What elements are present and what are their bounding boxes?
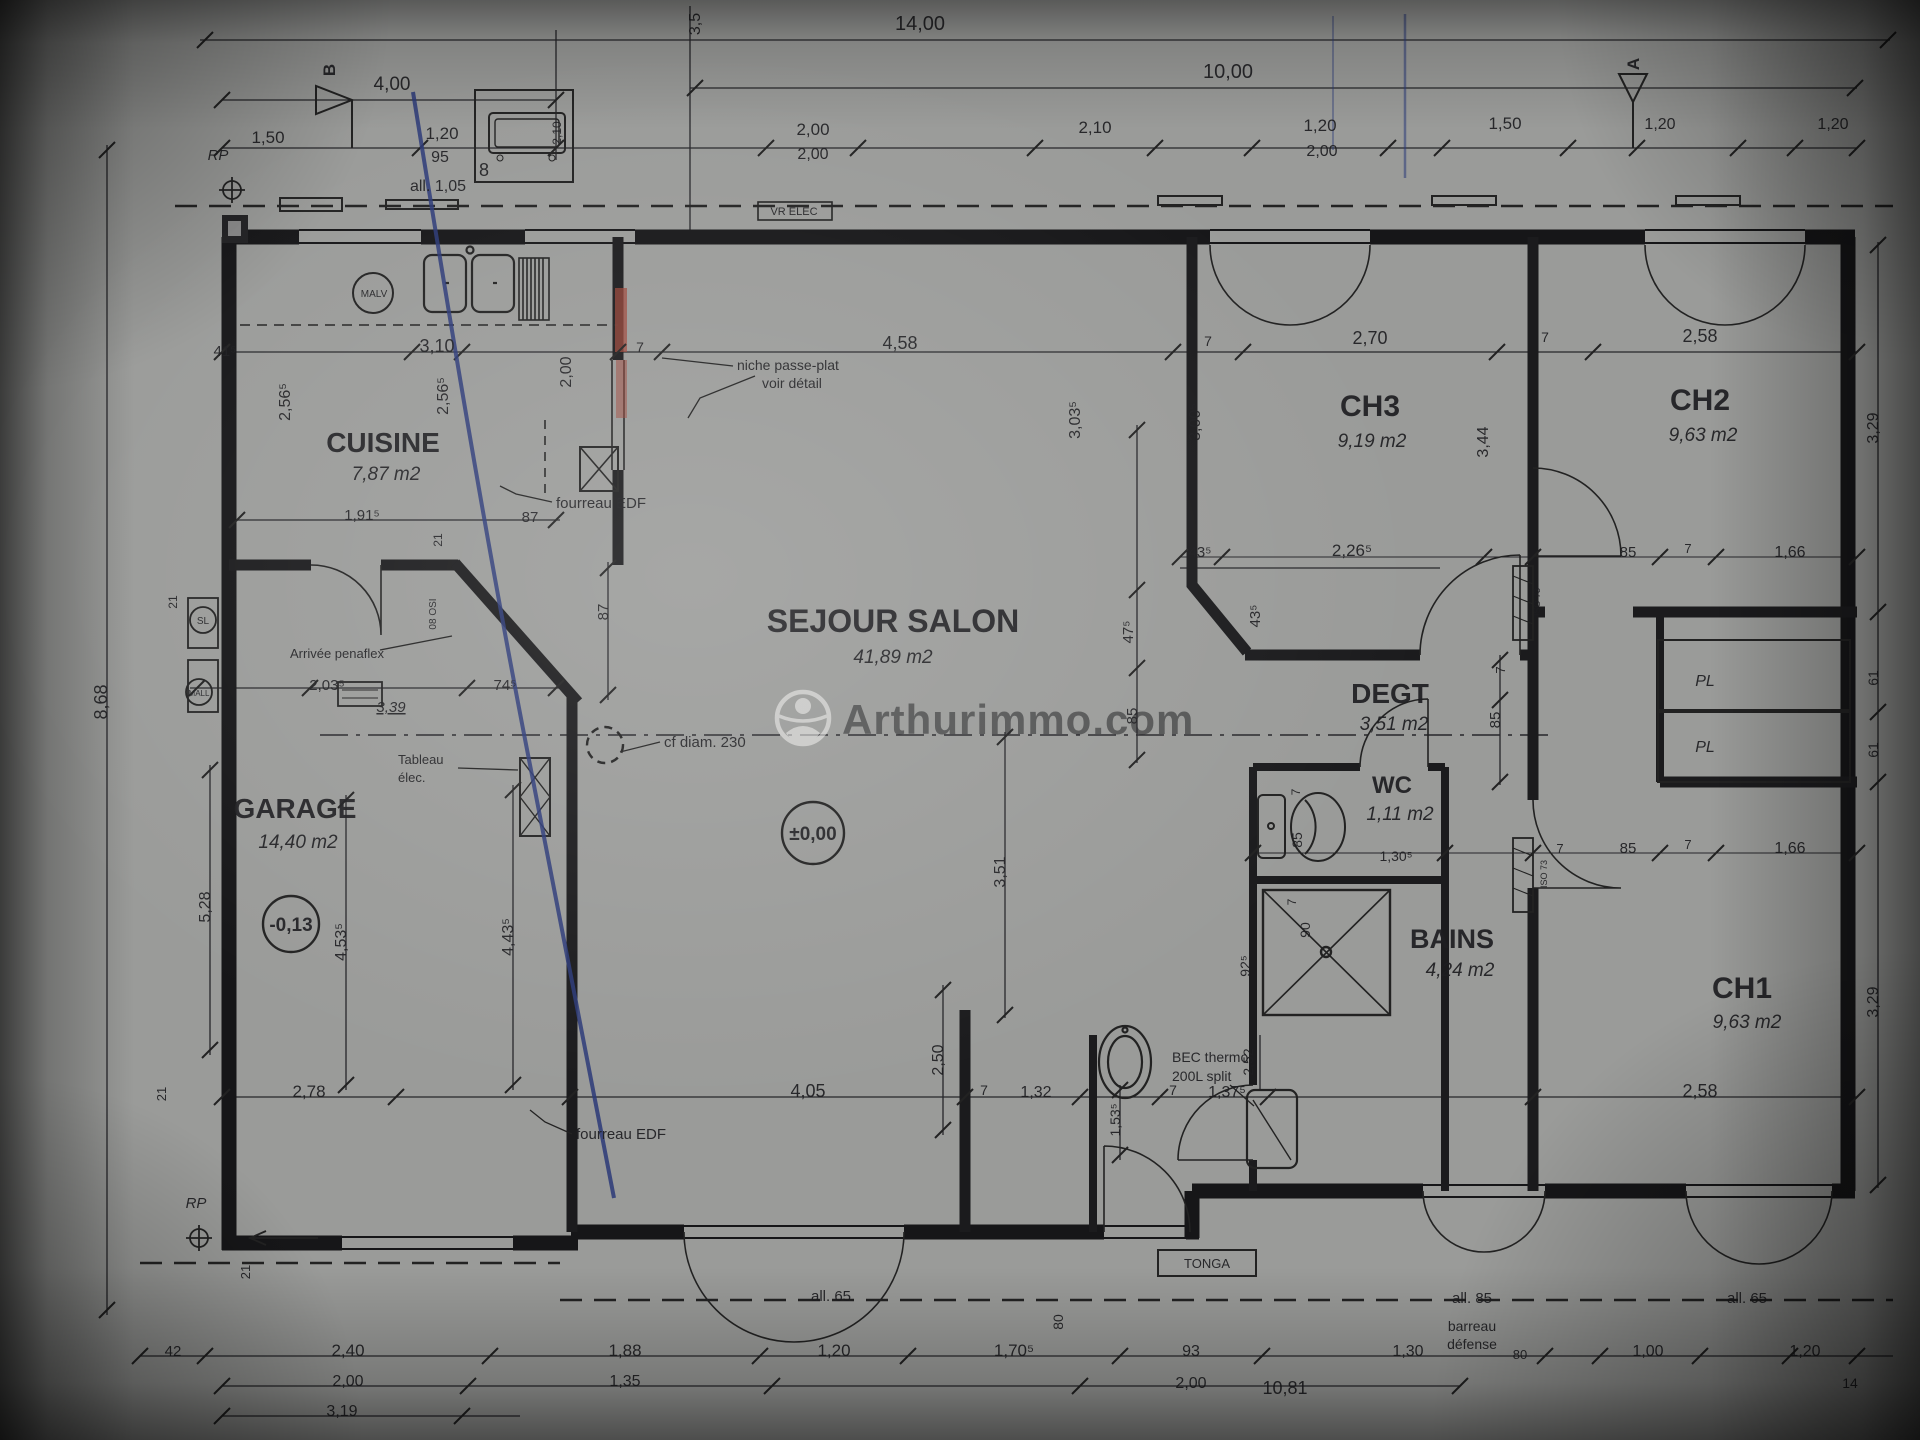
dim-label: 21 xyxy=(238,1265,253,1279)
room-area: 9,63 m2 xyxy=(1669,425,1738,446)
dim-label: 3,51 xyxy=(992,856,1009,887)
dim-label: 7 xyxy=(636,339,644,355)
dim-label: 4,05 xyxy=(790,1081,825,1101)
dim-label: 7 xyxy=(1556,841,1563,856)
dim-label: 08 OSI xyxy=(428,598,439,629)
dim-label: 1,20 xyxy=(817,1341,850,1360)
dim-label: 5,28 xyxy=(197,891,214,922)
niche-passe-plat xyxy=(612,288,755,470)
dim-label: RP xyxy=(208,147,229,164)
dim-label: SL xyxy=(197,616,210,627)
room-name: CH2 xyxy=(1670,384,1730,417)
dim-label: 1,66 xyxy=(1774,544,1805,561)
dim-label: 2,00 xyxy=(1175,1375,1206,1392)
shower-icon xyxy=(1263,890,1390,1015)
dim-label: 1,20 xyxy=(425,124,458,143)
dim-label: 85 xyxy=(1289,832,1305,848)
dim-label: 90 xyxy=(1297,922,1313,938)
room-area: 14,40 m2 xyxy=(258,832,338,853)
annotation-label: Arrivée penaflex xyxy=(290,646,384,661)
dim-label: 7 xyxy=(980,1082,988,1098)
dim-label: 1,50 xyxy=(251,128,284,147)
bathroom-fixtures xyxy=(1099,793,1390,1168)
room-area: 9,63 m2 xyxy=(1713,1012,1782,1033)
dim-label: 43⁵ xyxy=(1189,544,1212,561)
dim-label: 2,56⁵ xyxy=(435,377,452,415)
dim-label: 80 xyxy=(1513,1347,1527,1362)
cf-diam-230 xyxy=(587,727,660,763)
room-name: BAINS xyxy=(1410,924,1494,954)
dim-label: 10,81 xyxy=(1262,1378,1307,1398)
dim-label: RP xyxy=(186,1195,207,1212)
dim-label: 14 xyxy=(1842,1375,1858,1391)
dim-label: 1,70⁵ xyxy=(994,1341,1034,1360)
room-area: 3,51 m2 xyxy=(1360,714,1429,735)
dim-label: 2,10 xyxy=(550,121,564,145)
room-area: 1,11 m2 xyxy=(1366,804,1434,825)
dim-label: 2,00 xyxy=(1306,143,1337,160)
dim-label: 7 xyxy=(1493,666,1508,673)
dim-label: 47⁵ xyxy=(1120,621,1137,644)
arthurimmo-logo xyxy=(777,692,829,745)
annotation-label: all. 85 xyxy=(1452,1290,1492,1307)
dim-label: B xyxy=(320,64,339,76)
dim-label: 85 xyxy=(1620,544,1637,561)
annotation-label: all. 65 xyxy=(1727,1290,1767,1307)
annotation-label: niche passe-plat xyxy=(737,357,839,373)
dim-label: 1,35 xyxy=(609,1373,640,1390)
room-area: 7,87 m2 xyxy=(352,464,421,485)
dim-label: 2,00 xyxy=(332,1373,363,1390)
dim-label: 2,78 xyxy=(292,1082,325,1101)
dim-label: MALV xyxy=(361,289,388,300)
dim-label: 1,66 xyxy=(1774,840,1805,857)
room-name: DEGT xyxy=(1351,678,1429,709)
annotation-label: BEC thermo xyxy=(1172,1049,1248,1065)
dim-label: 7 xyxy=(1204,333,1212,349)
dim-label: 7 xyxy=(1289,788,1303,795)
dim-label: 10,00 xyxy=(1203,61,1253,83)
dim-label: 3,29 xyxy=(1865,986,1882,1017)
dim-label: 21 xyxy=(431,533,445,547)
dim-label: PL xyxy=(1695,739,1715,756)
annotation-label: élec. xyxy=(398,770,425,785)
annotation-label: all. 65 xyxy=(811,1288,851,1305)
washbasin-icon xyxy=(1099,1026,1151,1098)
room-name: CH3 xyxy=(1340,390,1400,423)
annotation-label: ISO 73 xyxy=(1532,588,1542,616)
dim-label: 1,20 xyxy=(1789,1343,1820,1360)
annotation-label: fourreau EDF xyxy=(576,1126,666,1143)
fourreau-edf-box xyxy=(500,420,618,502)
room-area: 4,24 m2 xyxy=(1426,960,1495,981)
dim-label: 7 xyxy=(1541,329,1549,345)
dim-label: 1,30 xyxy=(1392,1343,1423,1360)
dim-label: 7 xyxy=(1684,837,1691,852)
dim-label: 21 xyxy=(154,1087,169,1101)
annotation-label: TONGA xyxy=(1184,1256,1230,1271)
dim-label: 1,37⁵ xyxy=(1208,1084,1246,1101)
dim-label: 2,58 xyxy=(1682,326,1717,346)
room-name: CUISINE xyxy=(326,427,440,458)
dim-label: 2,00 xyxy=(558,356,575,387)
red-pencil-mark xyxy=(615,288,627,352)
dim-label: 2,58 xyxy=(1682,1081,1717,1101)
dim-label: 2,00 xyxy=(796,120,829,139)
dim-label: 85 xyxy=(1620,840,1637,857)
sink-icon xyxy=(424,247,514,313)
annotation-label: voir détail xyxy=(762,375,822,391)
annotation-label: Tableau xyxy=(398,752,444,767)
dim-label: MALL xyxy=(189,689,210,698)
dim-label: 4,53⁵ xyxy=(333,923,350,961)
dim-label: 1,50 xyxy=(1488,114,1521,133)
dim-label: 7 xyxy=(1684,541,1691,556)
fourreau-edf-bottom-leader xyxy=(530,1110,572,1134)
dishwasher-hatch xyxy=(519,258,549,320)
floor-plan-drawing: Arthurimmo.com 14,003,510,004,00BA1,501,… xyxy=(0,0,1920,1440)
dim-label: 2,50 xyxy=(930,1044,947,1075)
dim-label: 2,40 xyxy=(331,1341,364,1360)
dim-label: 7 xyxy=(1169,1082,1177,1098)
dim-label: 74⁵ xyxy=(494,677,517,694)
dim-label: 1,53⁵ xyxy=(1107,1103,1123,1136)
dim-label: 21 xyxy=(166,595,180,609)
dim-label: 61 xyxy=(1865,670,1881,686)
closets xyxy=(1513,566,1850,912)
dim-label: 200L split xyxy=(1172,1068,1232,1084)
section-markers xyxy=(316,74,1647,148)
level-label: ±0,00 xyxy=(789,824,836,845)
dim-label: 61 xyxy=(1865,742,1881,758)
dim-label: 80 xyxy=(1050,1314,1066,1330)
water-heater-icon xyxy=(1247,1090,1297,1168)
annotation-label: VR ELEC xyxy=(770,206,817,218)
dim-label: 41⁵ xyxy=(214,343,237,360)
dim-label: 1,20 xyxy=(1644,116,1675,133)
dim-label: 92⁵ xyxy=(1237,955,1253,976)
dim-label: 4,58 xyxy=(882,333,917,353)
dim-label: 4,43⁵ xyxy=(500,918,517,956)
shutter-boxes xyxy=(280,196,1740,211)
dim-label: 3,5 xyxy=(687,13,704,35)
annotation-label: ISO 73 xyxy=(1539,860,1549,888)
room-name: SEJOUR SALON xyxy=(767,603,1019,639)
red-pencil-mark xyxy=(616,360,627,418)
dim-label: 3,19 xyxy=(326,1403,357,1420)
dim-label: 85 xyxy=(1487,712,1504,729)
dim-label: 4,00 xyxy=(374,74,411,95)
dim-label: 43⁵ xyxy=(1247,605,1264,628)
room-name: GARAGE xyxy=(234,793,357,824)
dim-label: 42 xyxy=(165,1343,182,1360)
dim-label: 95 xyxy=(431,149,449,166)
dim-label: 7 xyxy=(1285,898,1299,905)
annotation-label: barreau xyxy=(1448,1318,1496,1334)
dim-label: 1,20 xyxy=(1303,116,1336,135)
room-area: 9,19 m2 xyxy=(1338,431,1407,452)
floor-plan-photo: Arthurimmo.com 14,003,510,004,00BA1,501,… xyxy=(0,0,1920,1440)
dim-label: 1,32 xyxy=(1020,1084,1051,1101)
dim-label: A xyxy=(1624,58,1643,70)
annotation-label: all. 1,05 xyxy=(410,178,466,195)
toilet-icon xyxy=(1258,793,1345,861)
dim-label: 3,03⁵ xyxy=(1067,401,1084,439)
annotation-label: défense xyxy=(1447,1336,1497,1352)
dim-label: 3,00⁵ xyxy=(1187,403,1204,441)
room-name: WC xyxy=(1372,772,1412,799)
dim-label: 2,10 xyxy=(1078,118,1111,137)
dim-label: 1,91⁵ xyxy=(344,507,379,524)
room-area: 41,89 m2 xyxy=(853,647,933,668)
dim-label: 3,29 xyxy=(1865,412,1882,443)
watermark-text: Arthurimmo.com xyxy=(842,696,1194,743)
dim-label: 1,88 xyxy=(608,1341,641,1360)
dim-label: 14,00 xyxy=(895,13,945,35)
room-name: CH1 xyxy=(1712,972,1772,1005)
dim-label: 1,20 xyxy=(1817,116,1848,133)
dim-label: 8,68 xyxy=(91,684,111,719)
dim-label: 93 xyxy=(1182,1343,1200,1360)
dim-label: 2,03⁵ xyxy=(309,677,344,694)
level-label: -0,13 xyxy=(269,915,312,936)
dim-label: 1,00 xyxy=(1632,1343,1663,1360)
dim-label: PL xyxy=(1695,673,1715,690)
dim-label: 2,00 xyxy=(797,146,828,163)
dim-label: 3,10 xyxy=(419,336,454,356)
dim-label: 2,56⁵ xyxy=(277,383,294,421)
dim-label: 2,70 xyxy=(1352,328,1387,348)
annotation-label: fourreau EDF xyxy=(556,495,646,512)
dim-label: 87 xyxy=(595,604,612,621)
dim-label: 1,30⁵ xyxy=(1379,848,1412,864)
dim-label: 8 xyxy=(479,160,489,180)
annotation-label: cf diam. 230 xyxy=(664,734,746,751)
dim-label: 85 xyxy=(1124,708,1141,725)
dim-label: 3,39 xyxy=(376,699,406,716)
dim-label: 87 xyxy=(522,509,539,526)
dim-label: 2,26⁵ xyxy=(1332,541,1372,560)
dim-label: 3,44 xyxy=(1475,426,1492,457)
